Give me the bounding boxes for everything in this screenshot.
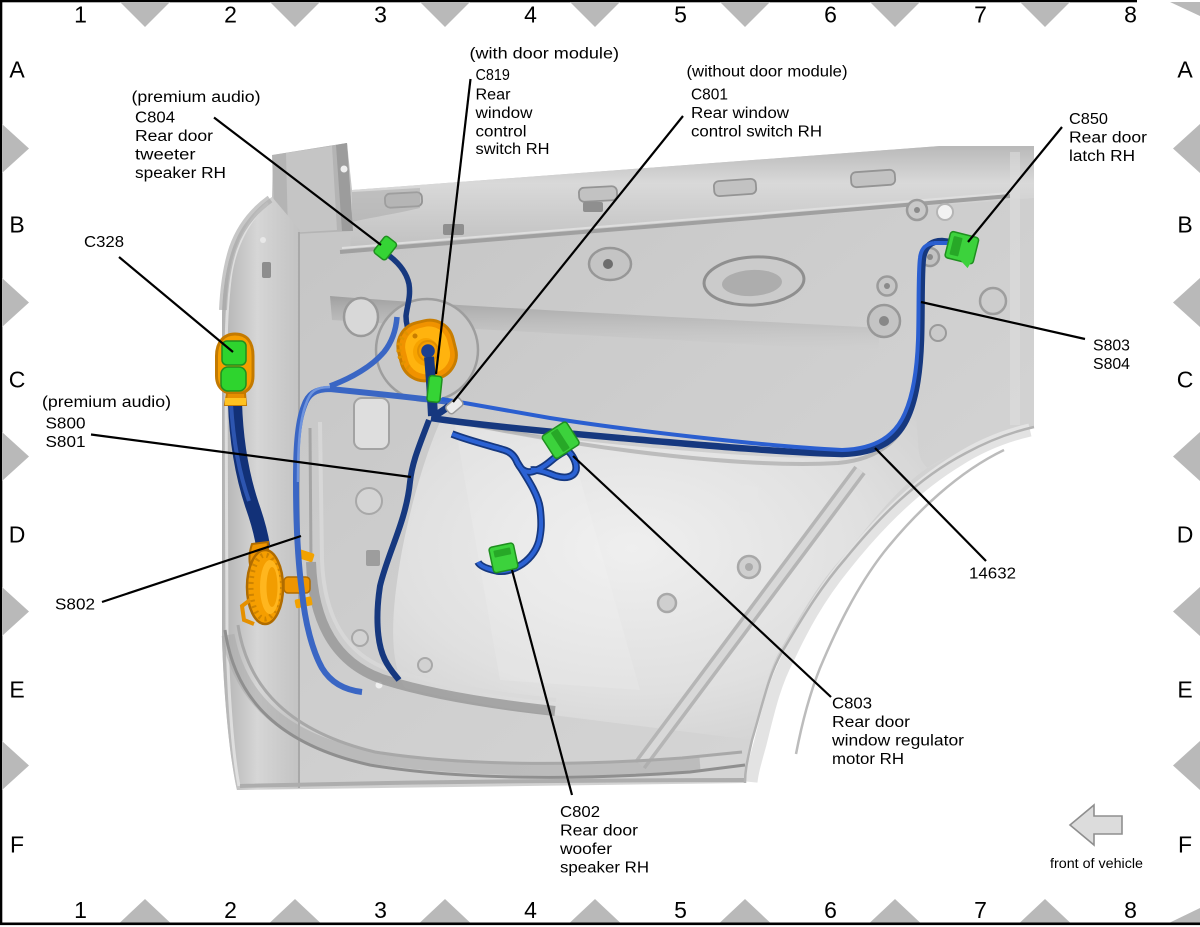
svg-text:control: control [476, 124, 527, 141]
svg-text:Rear door: Rear door [560, 823, 638, 840]
svg-text:S803: S803 [1093, 338, 1130, 355]
svg-text:F: F [10, 832, 24, 858]
svg-text:(premium audio): (premium audio) [42, 394, 171, 411]
svg-text:2: 2 [224, 2, 237, 28]
svg-text:14632: 14632 [969, 566, 1016, 583]
svg-text:B: B [9, 212, 24, 238]
svg-text:A: A [9, 57, 25, 83]
svg-text:1: 1 [74, 2, 87, 28]
svg-text:B: B [1177, 212, 1192, 238]
svg-text:Rear: Rear [476, 87, 511, 104]
svg-text:woofer: woofer [559, 841, 612, 858]
svg-text:7: 7 [974, 2, 987, 28]
svg-text:S801: S801 [46, 434, 86, 451]
svg-text:switch RH: switch RH [476, 141, 550, 158]
svg-text:E: E [1177, 677, 1192, 703]
svg-text:C802: C802 [560, 804, 600, 821]
svg-text:speaker RH: speaker RH [560, 860, 649, 877]
svg-text:control switch RH: control switch RH [691, 123, 822, 140]
svg-text:5: 5 [674, 2, 687, 28]
svg-text:C819: C819 [476, 67, 510, 84]
svg-text:8: 8 [1124, 897, 1137, 923]
svg-text:C: C [9, 367, 26, 393]
svg-text:E: E [9, 677, 24, 703]
svg-text:A: A [1177, 57, 1193, 83]
svg-text:D: D [1177, 522, 1194, 548]
svg-text:C: C [1177, 367, 1194, 393]
svg-text:latch RH: latch RH [1069, 148, 1135, 165]
svg-text:tweeter: tweeter [135, 147, 196, 164]
svg-text:C328: C328 [84, 234, 124, 251]
svg-text:7: 7 [974, 897, 987, 923]
svg-text:F: F [1178, 832, 1192, 858]
svg-text:Rear door: Rear door [1069, 130, 1147, 147]
svg-text:(without door module): (without door module) [687, 64, 848, 81]
svg-text:S800: S800 [46, 416, 86, 433]
svg-text:D: D [9, 522, 26, 548]
svg-text:window regulator: window regulator [831, 733, 964, 750]
svg-text:5: 5 [674, 897, 687, 923]
svg-text:C801: C801 [691, 87, 728, 104]
svg-text:4: 4 [524, 2, 537, 28]
svg-text:6: 6 [824, 897, 837, 923]
svg-text:front of vehicle: front of vehicle [1050, 856, 1143, 871]
svg-text:S802: S802 [55, 597, 95, 614]
svg-text:Rear door: Rear door [832, 714, 910, 731]
svg-text:(with door module): (with door module) [470, 46, 620, 63]
svg-text:motor RH: motor RH [832, 751, 904, 768]
svg-text:8: 8 [1124, 2, 1137, 28]
svg-text:6: 6 [824, 2, 837, 28]
svg-text:speaker RH: speaker RH [135, 165, 226, 182]
svg-text:C850: C850 [1069, 111, 1108, 128]
svg-text:C803: C803 [832, 696, 872, 713]
svg-text:Rear door: Rear door [135, 128, 213, 145]
svg-text:Rear window: Rear window [691, 105, 790, 122]
svg-text:4: 4 [524, 897, 537, 923]
svg-text:S804: S804 [1093, 356, 1130, 373]
svg-text:1: 1 [74, 897, 87, 923]
svg-text:3: 3 [374, 2, 387, 28]
svg-text:2: 2 [224, 897, 237, 923]
svg-text:window: window [474, 105, 533, 122]
svg-text:C804: C804 [135, 110, 175, 127]
svg-text:(premium audio): (premium audio) [132, 89, 261, 106]
svg-text:3: 3 [374, 897, 387, 923]
